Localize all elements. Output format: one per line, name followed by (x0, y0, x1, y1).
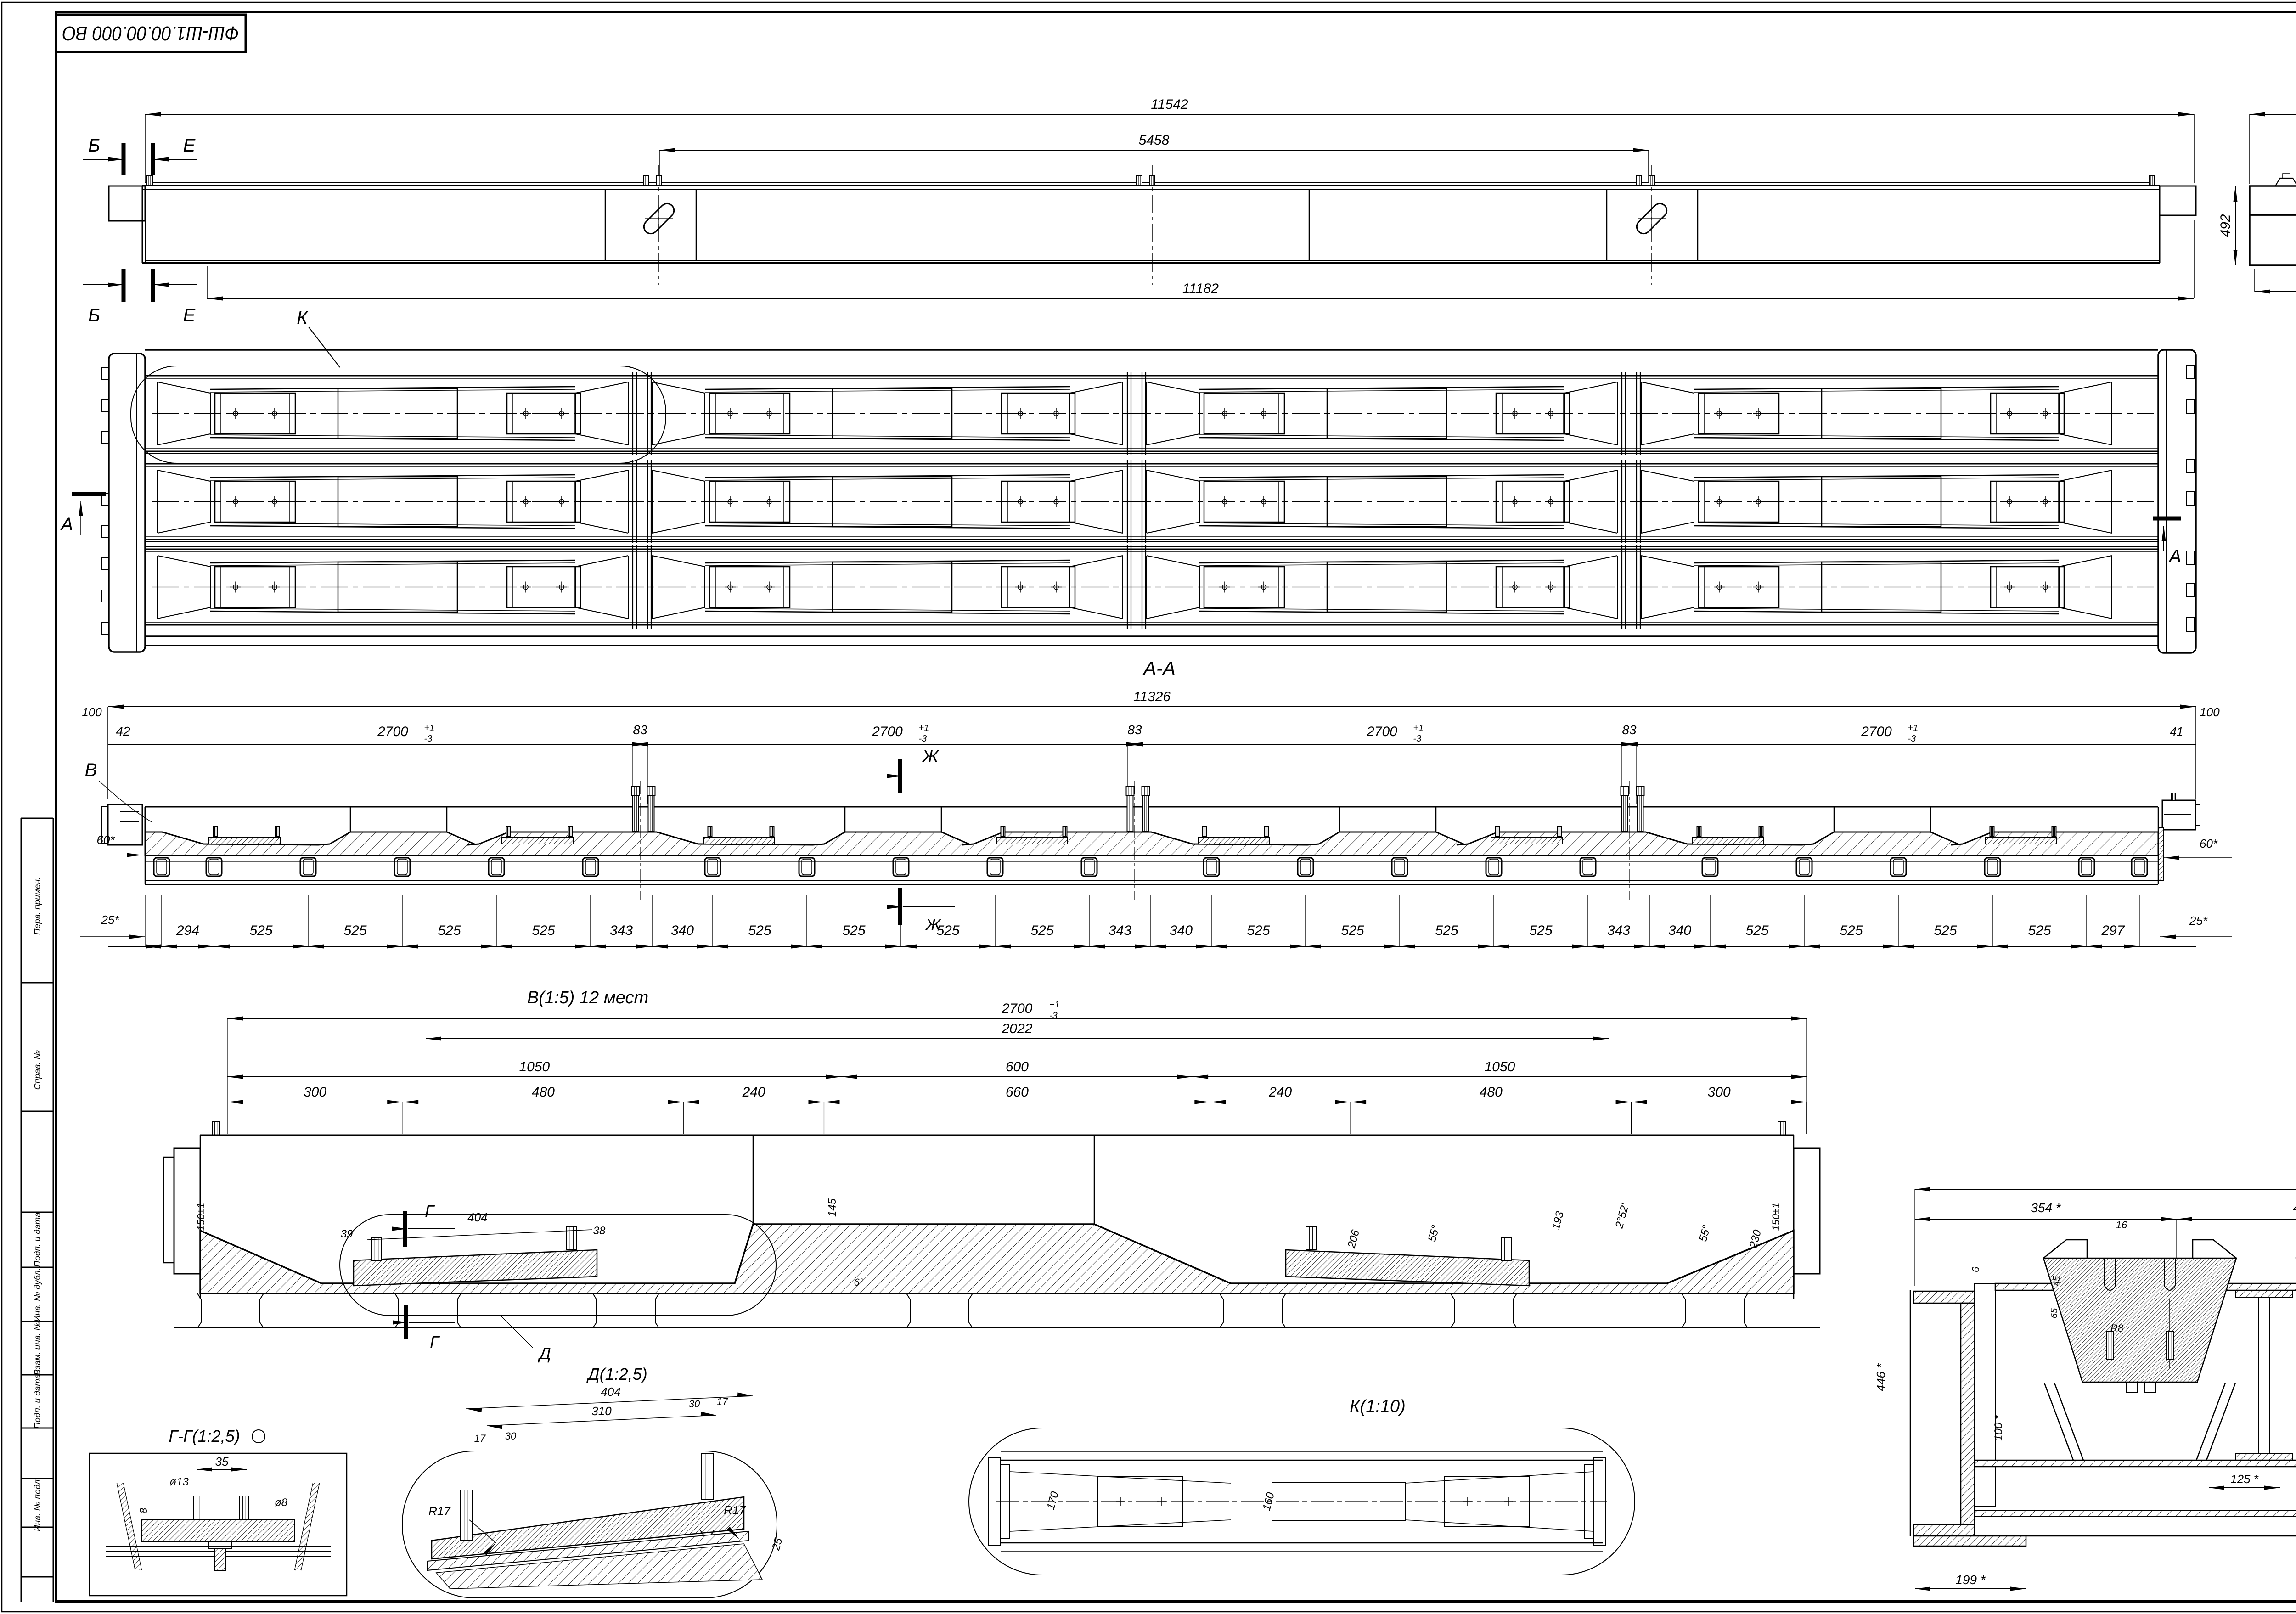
svg-text:480: 480 (1480, 1085, 1503, 1100)
svg-text:145: 145 (826, 1198, 838, 1217)
svg-text:30: 30 (689, 1398, 700, 1410)
svg-text:Г: Г (430, 1333, 440, 1351)
svg-text:17: 17 (717, 1396, 728, 1407)
svg-text:525: 525 (1529, 923, 1552, 938)
svg-text:11182: 11182 (1182, 281, 1219, 296)
svg-text:2022: 2022 (1002, 1021, 1033, 1036)
svg-text:300: 300 (1708, 1085, 1731, 1100)
svg-text:К: К (297, 308, 309, 328)
svg-text:+1: +1 (1049, 1000, 1060, 1010)
svg-text:525: 525 (748, 923, 771, 938)
svg-text:30: 30 (505, 1430, 517, 1442)
svg-text:340: 340 (1668, 923, 1691, 938)
svg-text:150±1: 150±1 (195, 1203, 207, 1231)
svg-text:А: А (60, 514, 73, 534)
svg-text:525: 525 (1840, 923, 1863, 938)
svg-text:404: 404 (601, 1385, 620, 1399)
svg-text:600: 600 (1006, 1059, 1029, 1074)
svg-text:45: 45 (2052, 1276, 2062, 1286)
svg-text:16: 16 (2116, 1219, 2127, 1231)
svg-text:-3: -3 (1049, 1011, 1058, 1021)
svg-text:6: 6 (1970, 1266, 1981, 1272)
svg-text:+1: +1 (424, 723, 435, 733)
svg-text:310: 310 (591, 1404, 612, 1418)
svg-text:446 *: 446 * (1874, 1363, 1888, 1392)
svg-text:343: 343 (1607, 923, 1630, 938)
svg-text:ø8: ø8 (275, 1496, 288, 1509)
svg-text:Ж: Ж (924, 915, 941, 934)
svg-text:ø13: ø13 (169, 1476, 189, 1488)
svg-text:525: 525 (343, 923, 366, 938)
svg-text:525: 525 (1247, 923, 1270, 938)
svg-text:100: 100 (82, 705, 102, 719)
svg-text:1050: 1050 (519, 1059, 550, 1074)
svg-text:R8: R8 (2110, 1322, 2124, 1334)
svg-text:Г-Г(1:2,5): Г-Г(1:2,5) (169, 1427, 240, 1445)
svg-text:240: 240 (1268, 1085, 1292, 1100)
svg-text:343: 343 (610, 923, 633, 938)
svg-text:525: 525 (532, 923, 555, 938)
svg-text:525: 525 (1341, 923, 1364, 938)
svg-text:39: 39 (341, 1228, 353, 1240)
svg-text:5458: 5458 (1139, 133, 1170, 148)
svg-text:Е: Е (183, 135, 196, 156)
svg-text:8: 8 (138, 1507, 149, 1513)
svg-text:Подп. и дата: Подп. и дата (33, 1213, 43, 1267)
svg-text:-3: -3 (919, 734, 927, 744)
svg-text:38: 38 (593, 1225, 606, 1237)
svg-text:Инв. № дубл.: Инв. № дубл. (33, 1268, 43, 1322)
svg-text:+1: +1 (919, 723, 929, 733)
svg-text:340: 340 (1170, 923, 1193, 938)
svg-text:В: В (85, 760, 97, 780)
svg-text:297: 297 (2101, 923, 2125, 938)
svg-text:R17: R17 (724, 1503, 746, 1517)
svg-text:Подп. и дата: Подп. и дата (33, 1374, 43, 1429)
svg-text:83: 83 (633, 723, 647, 737)
svg-text:525: 525 (2028, 923, 2051, 938)
svg-text:Д: Д (537, 1344, 551, 1363)
svg-text:83: 83 (1127, 723, 1142, 737)
svg-text:525: 525 (842, 923, 865, 938)
svg-text:480: 480 (532, 1085, 555, 1100)
svg-text:60*: 60* (2200, 837, 2218, 850)
svg-text:1050: 1050 (1485, 1059, 1515, 1074)
svg-text:2700: 2700 (872, 724, 903, 739)
svg-text:В(1:5) 12 мест: В(1:5) 12 мест (527, 988, 648, 1007)
svg-text:+1: +1 (1413, 723, 1424, 733)
svg-text:41: 41 (2170, 725, 2183, 738)
svg-text:100 *: 100 * (1992, 1415, 2005, 1441)
svg-text:А: А (2168, 546, 2182, 567)
svg-text:100: 100 (2200, 705, 2220, 719)
svg-text:294: 294 (176, 923, 199, 938)
svg-text:199 *: 199 * (1955, 1573, 1986, 1587)
svg-text:83: 83 (1622, 723, 1637, 737)
svg-text:17: 17 (474, 1433, 486, 1444)
svg-text:25*: 25* (101, 913, 119, 927)
svg-text:525: 525 (1934, 923, 1957, 938)
svg-text:Инв. № подл.: Инв. № подл. (33, 1477, 43, 1531)
svg-text:525: 525 (249, 923, 272, 938)
svg-text:Перв. примен.: Перв. примен. (33, 877, 43, 935)
svg-text:Взам. инв. №: Взам. инв. № (33, 1321, 43, 1375)
svg-text:ФШ-Ш1.00.00.000 ВО: ФШ-Ш1.00.00.000 ВО (62, 22, 239, 45)
svg-text:300: 300 (304, 1085, 326, 1100)
svg-text:Справ. №: Справ. № (33, 1050, 43, 1090)
svg-text:240: 240 (742, 1085, 765, 1100)
svg-text:-3: -3 (424, 734, 433, 744)
svg-text:Е: Е (183, 305, 196, 326)
svg-text:25*: 25* (2189, 914, 2208, 928)
svg-text:2700: 2700 (377, 724, 408, 739)
svg-text:42: 42 (116, 724, 130, 738)
svg-text:R17: R17 (428, 1504, 451, 1518)
svg-text:434: 434 (2293, 1201, 2296, 1215)
svg-text:2700: 2700 (1002, 1001, 1033, 1016)
svg-text:Д(1:2,5): Д(1:2,5) (586, 1365, 647, 1383)
svg-text:-3: -3 (1413, 734, 1422, 744)
svg-text:11542: 11542 (1151, 97, 1188, 112)
svg-text:525: 525 (1030, 923, 1053, 938)
svg-text:525: 525 (1745, 923, 1768, 938)
svg-text:2700: 2700 (1366, 724, 1397, 739)
svg-text:125 *: 125 * (2230, 1472, 2259, 1486)
svg-text:404: 404 (467, 1210, 487, 1224)
svg-text:340: 340 (671, 923, 694, 938)
svg-text:150±1: 150±1 (1770, 1203, 1782, 1231)
svg-text:К(1:10): К(1:10) (1350, 1397, 1406, 1416)
svg-text:Б: Б (88, 305, 100, 326)
svg-text:492: 492 (2218, 214, 2233, 237)
svg-text:60*: 60* (96, 833, 115, 847)
svg-text:А-А: А-А (1142, 658, 1176, 679)
svg-text:11326: 11326 (1133, 689, 1171, 704)
svg-text:2700: 2700 (1861, 724, 1892, 739)
svg-text:343: 343 (1109, 923, 1131, 938)
svg-text:Г: Г (425, 1202, 435, 1220)
svg-text:+1: +1 (1908, 723, 1919, 733)
svg-text:35: 35 (215, 1455, 229, 1468)
svg-text:525: 525 (438, 923, 461, 938)
svg-text:65: 65 (2049, 1308, 2060, 1318)
svg-text:-3: -3 (1908, 734, 1916, 744)
svg-text:525: 525 (1435, 923, 1458, 938)
svg-text:Ж: Ж (922, 747, 940, 766)
svg-text:Б: Б (88, 135, 100, 156)
svg-text:354 *: 354 * (2031, 1201, 2061, 1215)
svg-text:6°: 6° (854, 1277, 863, 1288)
svg-text:660: 660 (1006, 1085, 1029, 1100)
